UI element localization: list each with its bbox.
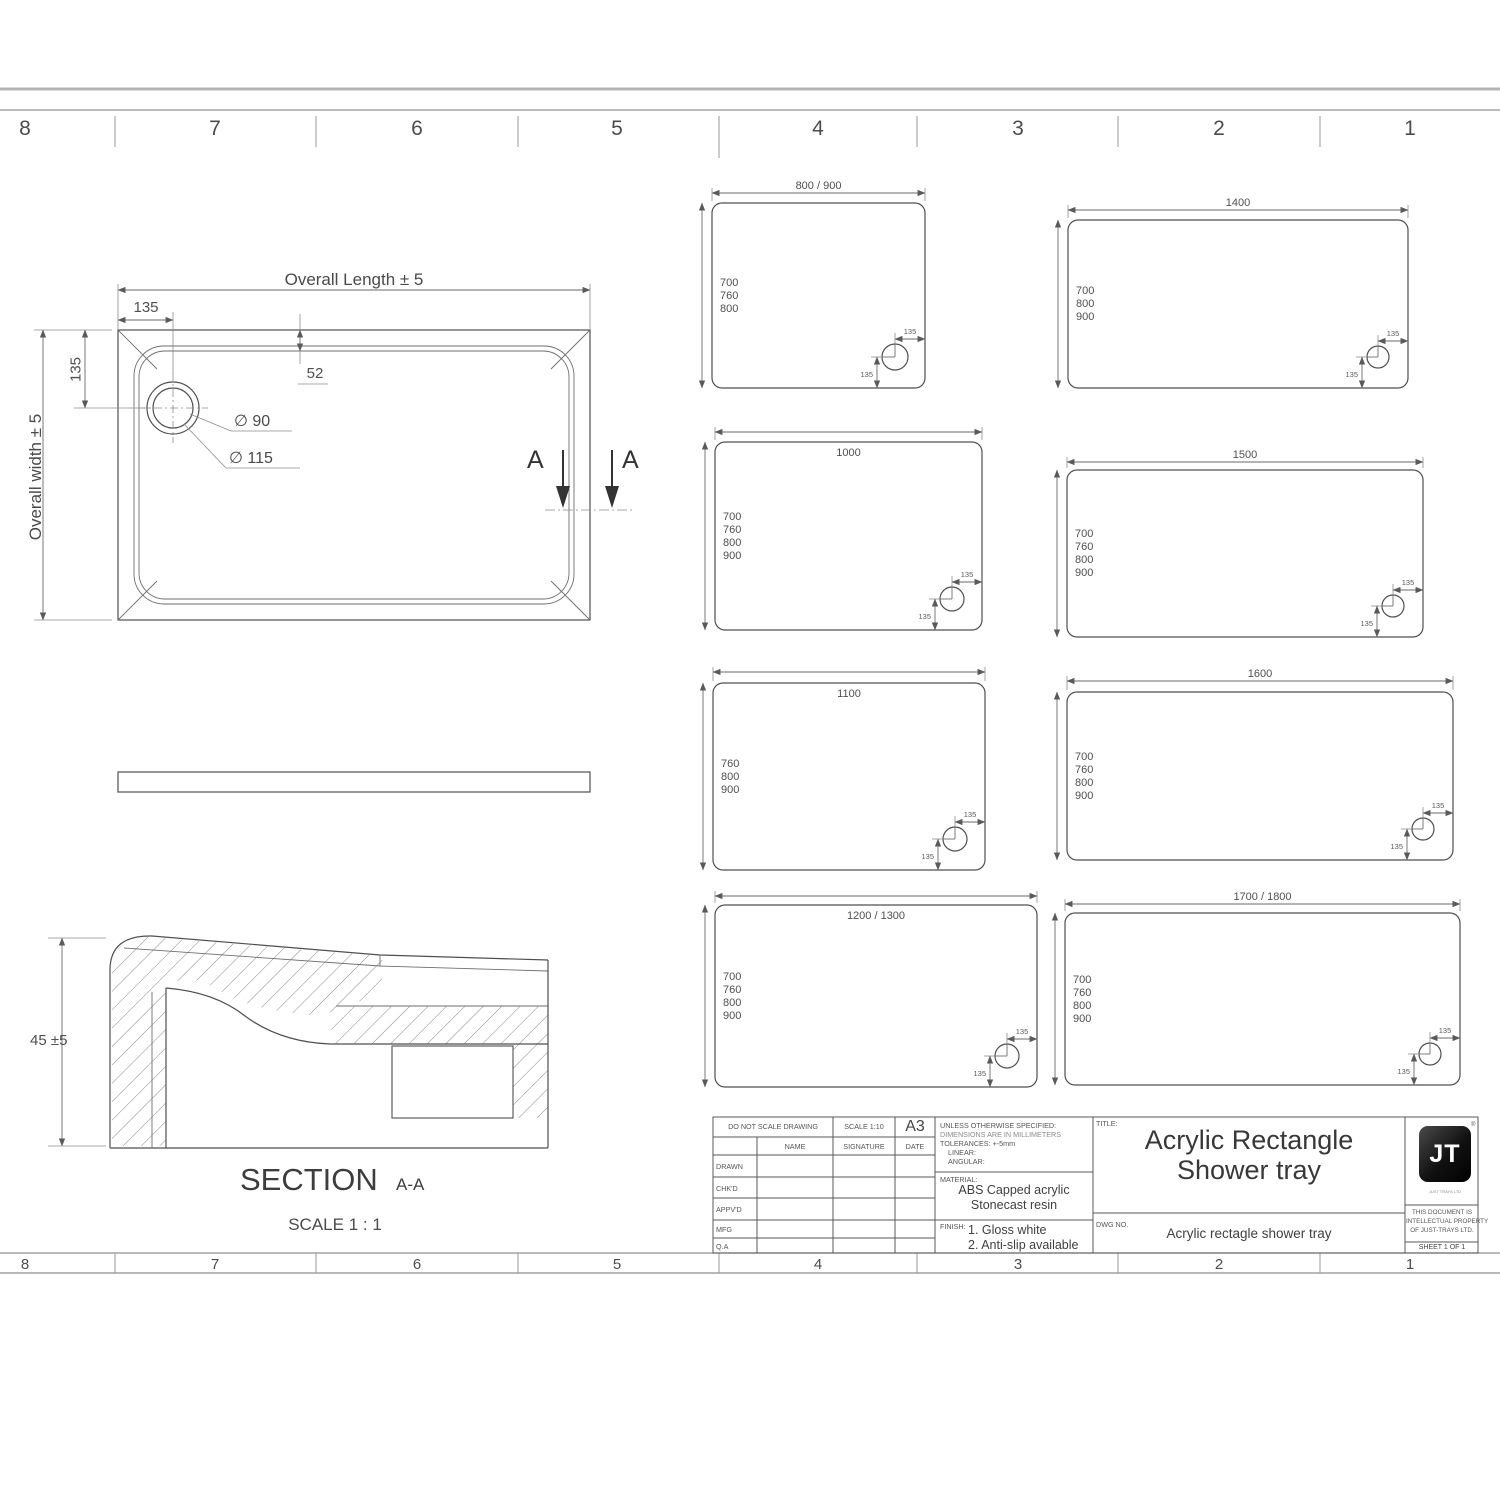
drain-offset-h-label: 135 [1397, 578, 1419, 587]
drain-offset-v-label: 135 [1340, 370, 1358, 379]
zone-bottom-5: 5 [595, 1256, 639, 1273]
size-width-options: 700 800 900 [1076, 285, 1094, 324]
spec-line4: LINEAR: [948, 1148, 976, 1157]
overall-length-dim-label: Overall Length ± 5 [234, 270, 474, 290]
zone-bottom-4: 4 [796, 1256, 840, 1273]
finish-line2: 2. Anti-slip available [968, 1238, 1078, 1252]
size-width-options: 760 800 900 [721, 758, 739, 797]
drain-offset-h-label: 135 [956, 570, 978, 579]
zone-bottom-7: 7 [193, 1256, 237, 1273]
section-scale: SCALE 1 : 1 [255, 1215, 415, 1235]
size-length-label: 1500 [1067, 449, 1423, 461]
size-tray-outline [712, 203, 925, 388]
size-tray-outline [1068, 220, 1408, 388]
sheet-number: SHEET 1 OF 1 [1406, 1244, 1478, 1251]
drain-offset-v-label: 135 [968, 1069, 986, 1078]
property-line3: OF JUST-TRAYS LTD. [1406, 1227, 1478, 1234]
zone-top-5: 5 [595, 117, 639, 141]
logo-caption: JUST TRAYS LTD [1415, 1190, 1474, 1195]
zone-bottom-2: 2 [1197, 1256, 1241, 1273]
drain-offset-v-label: 135 [1392, 1067, 1410, 1076]
spec-line1: UNLESS OTHERWISE SPECIFIED: [940, 1121, 1056, 1130]
name-header: NAME [757, 1142, 833, 1151]
spec-line5: ANGULAR: [948, 1157, 985, 1166]
size-length-label: 1000 [715, 447, 982, 459]
drain-offset-v-label: 135 [916, 852, 934, 861]
size-length-label: 1400 [1068, 197, 1408, 209]
material-line1: ABS Capped acrylic [935, 1183, 1093, 1197]
zone-top-6: 6 [395, 117, 439, 141]
drain-offset-h-label: 135 [1011, 1027, 1033, 1036]
drawing-title-line1: Acrylic Rectangle [1093, 1125, 1405, 1156]
material-line2: Stonecast resin [935, 1198, 1093, 1212]
size-width-options: 700 760 800 900 [723, 971, 741, 1023]
zone-top-4: 4 [796, 117, 840, 141]
drain-offset-v-label: 135 [855, 370, 873, 379]
drawing-linework [0, 0, 1500, 1500]
section-height-dim: 45 ±5 [30, 1032, 67, 1049]
property-line2: INTELLECTUAL PROPERTY [1406, 1218, 1478, 1225]
size-tray-outline [715, 905, 1037, 1087]
date-header: DATE [895, 1142, 935, 1151]
size-length-label: 1100 [713, 688, 985, 700]
size-tray-outline [715, 442, 982, 630]
size-width-options: 700 760 800 900 [1073, 974, 1091, 1026]
overall-width-dim-label: Overall width ± 5 [26, 387, 46, 567]
row-label-chkd: CHK'D [716, 1184, 738, 1193]
drain-offset-h-label: 135 [1427, 801, 1449, 810]
drain-offset-h-label: 135 [959, 810, 981, 819]
jt-logo: JT [1419, 1126, 1471, 1182]
size-tray-outline [1067, 692, 1453, 860]
dim-135-top: 135 [126, 299, 166, 316]
finish-label: FINISH: [940, 1222, 966, 1231]
property-line1: THIS DOCUMENT IS [1406, 1209, 1478, 1216]
size-width-options: 700 760 800 900 [1075, 528, 1093, 580]
row-label-appvd: APPV'D [716, 1205, 742, 1214]
size-length-label: 1200 / 1300 [715, 910, 1037, 922]
size-length-label: 800 / 900 [712, 180, 925, 192]
drain-offset-h-label: 135 [1434, 1026, 1456, 1035]
dim-135-left: 135 [68, 340, 85, 400]
size-tray-outline [1067, 470, 1423, 637]
section-title: SECTION [240, 1162, 378, 1198]
spec-line2: DIMENSIONS ARE IN MILLIMETERS [940, 1130, 1061, 1139]
size-tray-outline [1065, 913, 1460, 1085]
zone-bottom-8: 8 [3, 1256, 47, 1273]
zone-top-7: 7 [193, 117, 237, 141]
size-width-options: 700 760 800 [720, 277, 738, 316]
section-marker-a-left: A [527, 446, 544, 475]
side-elevation-view [118, 772, 590, 792]
signature-header: SIGNATURE [833, 1142, 895, 1151]
size-length-label: 1600 [1067, 668, 1453, 680]
drain-offset-h-label: 135 [1382, 329, 1404, 338]
zone-top-3: 3 [996, 117, 1040, 141]
zone-top-2: 2 [1197, 117, 1241, 141]
row-label-drawn: DRAWN [716, 1162, 743, 1171]
drain-offset-v-label: 135 [913, 612, 931, 621]
zone-top-1: 1 [1388, 117, 1432, 141]
size-width-options: 700 760 800 900 [723, 511, 741, 563]
paper-size: A3 [895, 1118, 935, 1136]
finish-line1: 1. Gloss white [968, 1223, 1047, 1237]
zone-bottom-6: 6 [395, 1256, 439, 1273]
zone-bottom-3: 3 [996, 1256, 1040, 1273]
drawing-scale: SCALE 1:10 [833, 1122, 895, 1131]
dwg-no-value: Acrylic rectagle shower tray [1093, 1226, 1405, 1241]
dim-52: 52 [300, 365, 330, 382]
drawing-sheet: 8 7 6 5 4 3 2 1 8 7 6 5 4 3 2 1 Overall … [0, 0, 1500, 1500]
drain-offset-h-label: 135 [899, 327, 921, 336]
do-not-scale-note: DO NOT SCALE DRAWING [713, 1122, 833, 1131]
drain-diameter-90-label: ∅ 90 [234, 411, 270, 431]
drain-diameter-115-label: ∅ 115 [229, 448, 273, 468]
row-label-qa: Q.A [716, 1242, 728, 1251]
row-label-mfg: MFG [716, 1225, 732, 1234]
logo-reg-mark: ® [1471, 1122, 1475, 1128]
size-length-label: 1700 / 1800 [1065, 891, 1460, 903]
section-title-suffix: A-A [396, 1175, 424, 1195]
drawing-title-line2: Shower tray [1093, 1155, 1405, 1186]
drain-offset-v-label: 135 [1385, 842, 1403, 851]
spec-line3: TOLERANCES: +-5mm [940, 1139, 1015, 1148]
jt-logo-text: JT [1429, 1140, 1460, 1169]
zone-bottom-1: 1 [1388, 1256, 1432, 1273]
zone-top-8: 8 [3, 117, 47, 141]
size-tray-outline [713, 683, 985, 870]
size-width-options: 700 760 800 900 [1075, 751, 1093, 803]
drain-offset-v-label: 135 [1355, 619, 1373, 628]
section-view [48, 936, 548, 1148]
section-marker-a-right: A [622, 446, 639, 475]
